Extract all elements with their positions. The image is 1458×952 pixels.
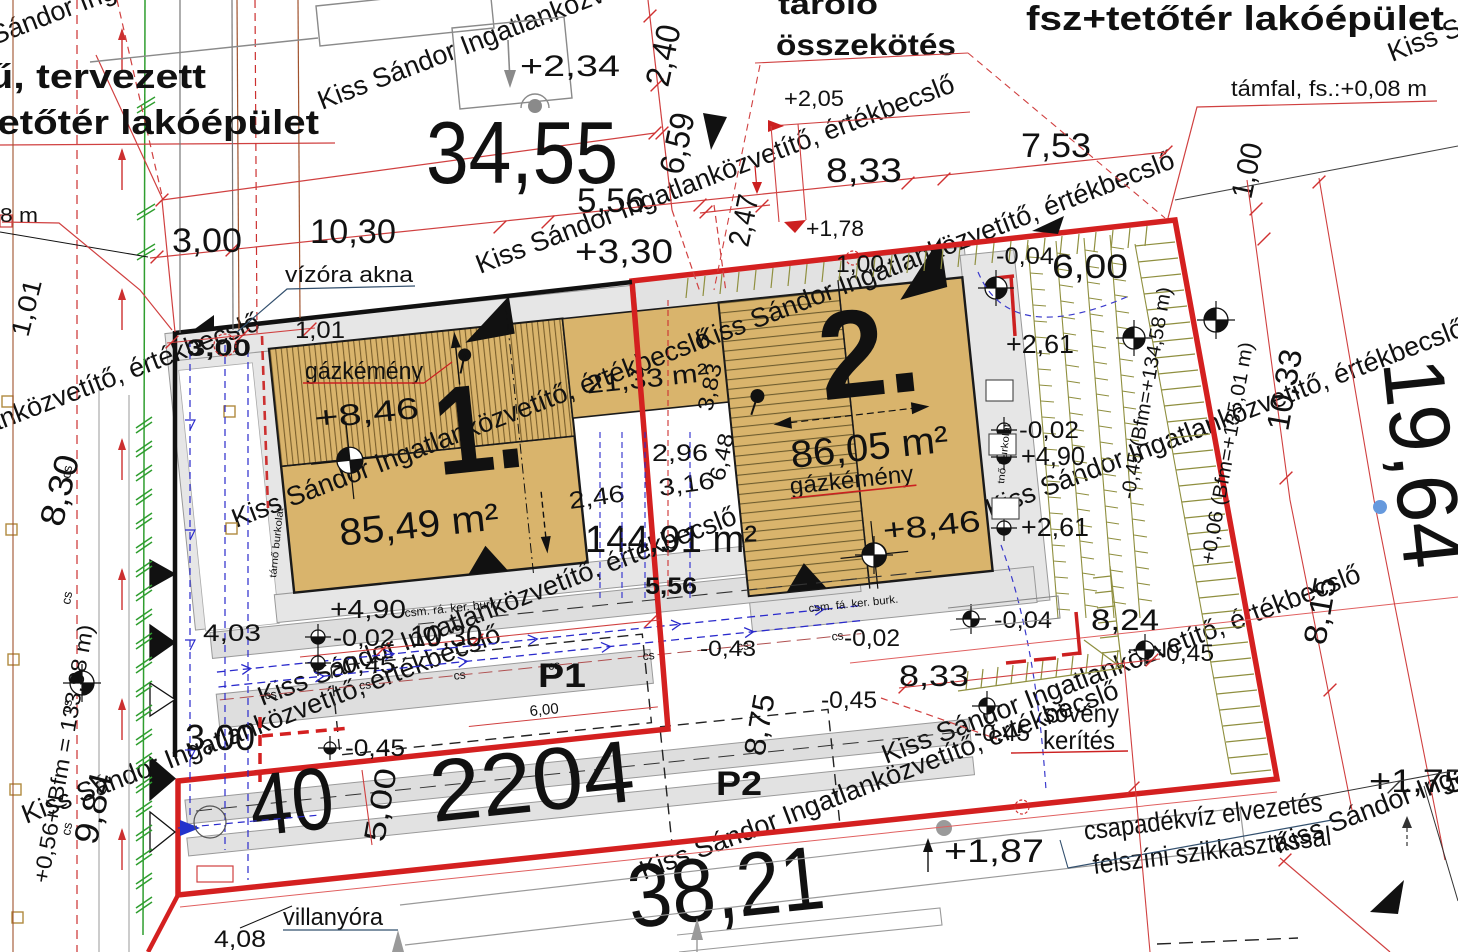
svg-text:+4,90: +4,90: [1021, 441, 1085, 471]
svg-text:-0,45: -0,45: [345, 735, 405, 762]
svg-text:10,30: 10,30: [310, 213, 396, 251]
svg-text:5,56: 5,56: [645, 573, 697, 600]
svg-text:-0,45: -0,45: [821, 687, 877, 714]
svg-text:cs: cs: [453, 668, 466, 683]
svg-text:fsz+tetőtér lakóépület: fsz+tetőtér lakóépület: [1026, 0, 1444, 38]
svg-text:cs: cs: [831, 629, 844, 644]
svg-text:-0,43: -0,43: [700, 636, 756, 661]
svg-text:összekötés: összekötés: [776, 29, 956, 62]
svg-text:5,56: 5,56: [577, 182, 645, 220]
svg-text:kerítés: kerítés: [1043, 725, 1115, 755]
svg-text:-0,45: -0,45: [974, 720, 1030, 747]
svg-text:-0,02: -0,02: [333, 625, 395, 652]
svg-text:1,01: 1,01: [295, 317, 345, 344]
svg-text:4,03: 4,03: [203, 620, 261, 647]
svg-text:gázkémény: gázkémény: [305, 358, 423, 385]
svg-text:ű, tervezett: ű, tervezett: [0, 58, 206, 96]
svg-text:P1: P1: [538, 657, 586, 695]
svg-text:+3,30: +3,30: [575, 233, 673, 271]
svg-text:+2,61: +2,61: [1006, 329, 1074, 359]
svg-text:cs: cs: [642, 648, 655, 663]
svg-text:7,53: 7,53: [1021, 127, 1091, 165]
svg-text:10,30: 10,30: [410, 620, 482, 653]
svg-text:1,00: 1,00: [836, 251, 884, 278]
svg-text:+1,87: +1,87: [944, 833, 1044, 869]
svg-text:-0,45: -0,45: [333, 652, 395, 679]
svg-text:támfal, fs.:+0,08 m: támfal, fs.:+0,08 m: [1231, 76, 1427, 101]
svg-text:+4,90: +4,90: [330, 594, 406, 624]
svg-text:-0,04: -0,04: [994, 607, 1052, 634]
svg-text:-0,04: -0,04: [996, 243, 1054, 270]
svg-text:2,96: 2,96: [652, 440, 708, 467]
svg-text:1.: 1.: [427, 355, 529, 502]
svg-text:cs: cs: [264, 687, 277, 702]
svg-text:tetőtér lakóépület: tetőtér lakóépület: [0, 104, 319, 142]
svg-text:8 m: 8 m: [0, 205, 38, 227]
svg-text:villanyóra: villanyóra: [283, 904, 384, 931]
svg-text:6,00: 6,00: [1052, 248, 1128, 286]
svg-text:+2,05: +2,05: [784, 86, 844, 111]
svg-text:P2: P2: [716, 765, 762, 803]
svg-text:-0,45: -0,45: [1158, 640, 1214, 667]
svg-text:8,33: 8,33: [826, 152, 902, 190]
svg-text:+2,61: +2,61: [1021, 512, 1089, 542]
svg-text:cs: cs: [358, 677, 371, 692]
svg-text:4,08: 4,08: [214, 926, 266, 952]
svg-text:2.: 2.: [812, 279, 926, 428]
svg-text:40: 40: [245, 748, 339, 855]
svg-text:-0,02: -0,02: [1019, 417, 1079, 444]
svg-text:+2,34: +2,34: [520, 50, 620, 83]
svg-text:tároló: tároló: [778, 0, 878, 21]
svg-text:3,00: 3,00: [187, 335, 251, 362]
svg-text:3,00: 3,00: [172, 222, 242, 260]
svg-text:+1,75: +1,75: [1369, 763, 1458, 799]
svg-text:8,33: 8,33: [899, 660, 969, 693]
svg-text:sövény: sövény: [1043, 698, 1119, 728]
svg-text:vízóra akna: vízóra akna: [285, 262, 414, 287]
svg-text:3,00: 3,00: [185, 717, 255, 758]
svg-text:+1,78: +1,78: [806, 216, 864, 241]
svg-text:8,24: 8,24: [1091, 604, 1159, 637]
svg-text:-0,02: -0,02: [844, 625, 900, 652]
svg-text:144,91 m²: 144,91 m²: [585, 519, 757, 561]
